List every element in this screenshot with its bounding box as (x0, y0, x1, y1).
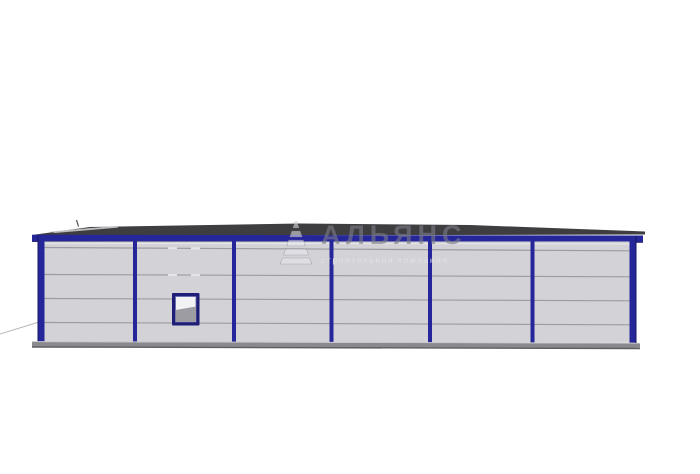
roof-slab (32, 224, 645, 237)
corner-column-left (38, 235, 45, 345)
ground-line (0, 322, 39, 334)
mullion (133, 241, 137, 343)
mullion (330, 241, 334, 343)
mullion (232, 241, 236, 343)
building-elevation (0, 0, 700, 474)
render-canvas: АЛЬЯНС строительная компания (0, 0, 700, 474)
corner-column-right (630, 236, 637, 347)
wall-panels (45, 242, 630, 343)
mullion (531, 241, 535, 343)
roof-antenna (77, 220, 79, 227)
mullion (428, 241, 432, 343)
window (172, 293, 200, 326)
